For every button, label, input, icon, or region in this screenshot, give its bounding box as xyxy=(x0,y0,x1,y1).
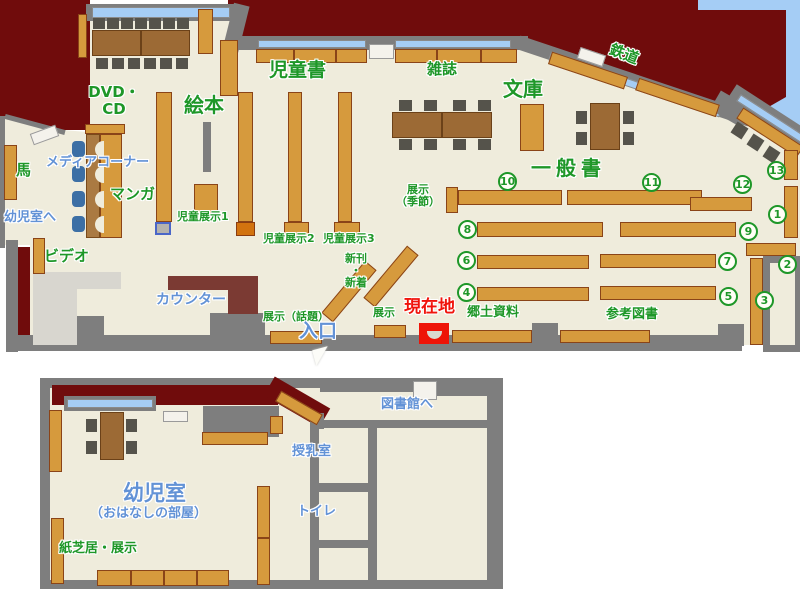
chair xyxy=(163,18,175,29)
label-kyoudo-shiryou: 郷土資料 xyxy=(467,306,519,320)
chair xyxy=(176,58,188,69)
shelf-number-9: 9 xyxy=(739,222,758,241)
bookshelf xyxy=(97,570,131,586)
chair xyxy=(144,58,156,69)
wall-segment xyxy=(532,323,558,343)
wall-segment xyxy=(368,420,377,580)
label-iriguchi: 入口 xyxy=(299,321,337,342)
chair xyxy=(399,139,412,150)
chair xyxy=(576,132,587,145)
shelf-number-7: 7 xyxy=(718,252,737,271)
wall-segment xyxy=(437,384,491,396)
bookshelf xyxy=(374,325,406,338)
wall-segment xyxy=(718,324,744,346)
label-jidou-tenji2: 児童展示2 xyxy=(263,233,315,245)
label-youjishitsu: 幼児室 xyxy=(123,482,186,505)
reading-table xyxy=(92,30,141,56)
label-jidou-tenji3: 児童展示3 xyxy=(323,233,375,245)
window xyxy=(258,40,366,48)
library-floor-map: DVD・ CD絵本児童書雑誌文庫一般書鉄道メディアコーナーマンガ馬幼児室へビデオ… xyxy=(0,0,800,590)
bookshelf xyxy=(131,570,164,586)
bookshelf xyxy=(78,14,87,58)
wall-segment xyxy=(210,313,265,335)
label-tenji-kisetsu: 展示 （季節） xyxy=(392,184,444,208)
chair xyxy=(149,18,161,29)
bookshelf xyxy=(446,187,458,213)
label-shinkan-shinchaku: 新刊 ・ 新着 xyxy=(338,253,374,289)
service-counter xyxy=(168,276,232,290)
bookshelf xyxy=(198,9,213,54)
chair xyxy=(128,58,140,69)
chair xyxy=(453,139,466,150)
chair xyxy=(86,441,97,454)
wall-segment xyxy=(310,540,377,548)
shelf-number-5: 5 xyxy=(719,287,738,306)
alcove-floor xyxy=(770,263,795,345)
bookshelf xyxy=(784,150,798,180)
bookshelf xyxy=(477,255,589,269)
shelf-number-8: 8 xyxy=(458,220,477,239)
shelf-number-13: 13 xyxy=(767,161,786,180)
bookshelf xyxy=(481,49,517,63)
reading-table xyxy=(442,112,492,138)
wall-darkred xyxy=(18,247,30,342)
chair xyxy=(424,139,437,150)
label-counter: カウンター xyxy=(156,293,226,308)
wall-segment xyxy=(320,382,420,392)
label-bunko: 文庫 xyxy=(503,78,543,100)
bookshelf xyxy=(257,538,270,585)
bookshelf xyxy=(197,570,229,586)
service-counter xyxy=(228,276,258,314)
bookshelf xyxy=(452,330,532,343)
bookshelf xyxy=(257,486,270,538)
entrance-lobby xyxy=(33,289,77,345)
chair xyxy=(160,58,172,69)
label-genzaichi: 現在地 xyxy=(404,298,455,317)
shelf-number-1: 1 xyxy=(768,205,787,224)
window xyxy=(395,40,511,48)
wall-segment xyxy=(487,384,503,588)
shelf-number-3: 3 xyxy=(755,291,774,310)
shelf-number-12: 12 xyxy=(733,175,752,194)
bookshelf xyxy=(620,222,736,237)
label-junyuushitsu: 授乳室 xyxy=(292,445,331,459)
wall-segment xyxy=(310,420,487,428)
shelf-number-2: 2 xyxy=(778,255,797,274)
bookshelf xyxy=(156,92,172,222)
label-dvd-cd: DVD・ CD xyxy=(88,84,140,117)
wall-segment xyxy=(310,483,377,492)
media-chair xyxy=(72,216,85,232)
bookshelf xyxy=(477,287,589,301)
reading-table xyxy=(392,112,442,138)
media-chair xyxy=(72,191,85,207)
bookshelf xyxy=(336,49,367,63)
chair xyxy=(135,18,147,29)
entrance-lobby xyxy=(33,272,121,289)
bookshelf xyxy=(202,432,268,445)
shelf-number-6: 6 xyxy=(457,251,476,270)
label-youjishitsu-e: 幼児室へ xyxy=(4,211,56,225)
chair xyxy=(126,419,137,432)
bookshelf xyxy=(600,254,716,268)
label-kamishibai: 紙芝居・展示 xyxy=(59,542,137,556)
label-video: ビデオ xyxy=(44,248,89,265)
bookshelf xyxy=(49,410,62,472)
bookshelf xyxy=(164,570,197,586)
chair xyxy=(126,441,137,454)
chair xyxy=(112,58,124,69)
label-jidousho: 児童書 xyxy=(269,60,326,81)
window xyxy=(67,399,153,408)
reading-table xyxy=(100,412,124,460)
bookshelf xyxy=(220,40,238,96)
label-sankou-tosho: 参考図書 xyxy=(606,308,658,322)
chair xyxy=(478,100,491,111)
chair xyxy=(478,139,491,150)
shelf-number-10: 10 xyxy=(498,172,517,191)
bookshelf xyxy=(458,190,562,205)
wall-segment xyxy=(203,122,211,172)
label-ehon: 絵本 xyxy=(184,94,224,116)
label-toshokan-e: 図書館へ xyxy=(381,398,433,412)
bookshelf xyxy=(85,124,125,134)
label-ohanashi: （おはなしの部屋） xyxy=(90,507,207,521)
label-media-corner: メディアコーナー xyxy=(46,156,149,170)
bookshelf xyxy=(600,286,716,300)
chair xyxy=(93,18,105,29)
bookshelf xyxy=(288,92,302,222)
display-stand xyxy=(155,222,171,235)
bookshelf xyxy=(477,222,603,237)
label-tenji: 展示 xyxy=(373,307,395,319)
door xyxy=(369,44,394,59)
label-zasshi: 雑誌 xyxy=(427,61,457,78)
chair xyxy=(424,100,437,111)
chair xyxy=(623,111,634,124)
reading-table xyxy=(141,30,190,56)
bookshelf xyxy=(567,190,702,205)
chair xyxy=(623,132,634,145)
reading-table xyxy=(590,103,620,150)
shelf-number-4: 4 xyxy=(457,283,476,302)
chair xyxy=(96,58,108,69)
label-uma: 馬 xyxy=(16,162,31,179)
label-manga: マンガ xyxy=(110,186,155,203)
chair xyxy=(576,111,587,124)
bookshelf xyxy=(238,92,253,222)
bookshelf xyxy=(520,104,544,151)
chair xyxy=(453,100,466,111)
bookshelf xyxy=(746,243,796,256)
label-ippansho: 一般書 xyxy=(531,157,606,179)
bookshelf xyxy=(338,92,352,222)
chair xyxy=(107,18,119,29)
bookshelf xyxy=(690,197,752,211)
door xyxy=(163,411,188,422)
shelf-number-11: 11 xyxy=(642,173,661,192)
bookshelf xyxy=(270,416,283,434)
label-jidou-tenji1: 児童展示1 xyxy=(177,211,229,223)
chair xyxy=(177,18,189,29)
display-box xyxy=(236,222,255,236)
wall-segment xyxy=(6,240,18,352)
chair xyxy=(86,419,97,432)
chair xyxy=(121,18,133,29)
label-toilet: トイレ xyxy=(297,505,336,519)
chair xyxy=(399,100,412,111)
bookshelf xyxy=(560,330,650,343)
